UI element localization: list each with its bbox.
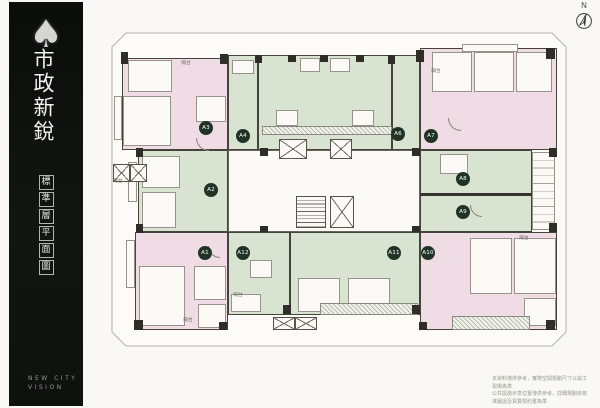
room-label: 陽台	[519, 235, 528, 241]
floor-plan: A1A2A3A4A6A7A8A9A10A11A12 陽台陽台陽台陽台陽台陽台	[0, 0, 600, 408]
unit-label-a4: A4	[236, 129, 250, 143]
wall-chunk	[260, 226, 268, 232]
wall-chunk	[546, 48, 555, 59]
room	[142, 156, 180, 188]
room-label: 陽台	[181, 60, 190, 66]
balcony	[114, 96, 122, 140]
service-balcony	[295, 317, 317, 330]
wall-chunk	[134, 320, 143, 330]
room	[196, 96, 226, 122]
unit-label-a11: A11	[387, 246, 401, 260]
unit-label-a9: A9	[456, 205, 470, 219]
room	[194, 266, 226, 300]
room	[139, 266, 185, 326]
wall-chunk	[549, 148, 557, 157]
wall-chunk	[546, 320, 555, 330]
bath-room	[352, 110, 374, 126]
wall-chunk	[412, 226, 420, 232]
closet-strip	[532, 152, 555, 230]
wall-chunk	[288, 55, 296, 62]
unit-a8-block	[420, 150, 532, 195]
room	[142, 192, 176, 228]
disclaimer-line2: 公共設施示意位置僅供參考，詳細規劃依核准圖說及買賣契約書為準	[492, 391, 588, 406]
wall-chunk	[549, 223, 557, 232]
wall-chunk	[388, 55, 395, 64]
room-label: 陽台	[113, 178, 122, 184]
room-label: 陽台	[183, 317, 192, 323]
unit-label-a10: A10	[421, 246, 435, 260]
wall-chunk	[219, 322, 227, 330]
room	[470, 238, 512, 294]
page: ♠ 市政新銳 標準層平面圖 NEW CITY VISION N	[0, 0, 600, 408]
balcony-hatch	[452, 316, 530, 330]
stairwell	[296, 196, 326, 228]
room	[128, 60, 172, 92]
unit-label-a12: A12	[236, 246, 250, 260]
service-balcony	[273, 317, 295, 330]
party-wall	[420, 193, 532, 196]
room	[330, 58, 350, 72]
disclaimer-line1: 本資料僅供參考，實際空間規劃尺寸以竣工現場為準	[492, 376, 588, 391]
balcony-hatch	[320, 303, 418, 315]
elevator-shaft	[279, 139, 307, 159]
wall-chunk	[136, 148, 143, 157]
unit-label-a6: A6	[391, 127, 405, 141]
wall-chunk	[412, 305, 420, 314]
service-balcony	[130, 164, 147, 182]
elevator-shaft	[330, 139, 352, 159]
unit-label-a1: A1	[198, 246, 212, 260]
wall-chunk	[260, 148, 268, 156]
corridor-hatch	[262, 126, 392, 135]
wall-chunk	[121, 52, 128, 64]
room	[123, 96, 171, 146]
room-label: 陽台	[431, 68, 440, 74]
wall-chunk	[320, 55, 328, 62]
bath-room	[276, 110, 298, 126]
unit-a5-a6-block	[258, 55, 392, 150]
balcony	[126, 240, 135, 288]
unit-label-a3: A3	[199, 121, 213, 135]
wall-chunk	[283, 305, 291, 314]
room	[232, 60, 254, 74]
wall-chunk	[136, 224, 143, 233]
wall-chunk	[255, 55, 262, 63]
room-label: 陽台	[233, 292, 242, 298]
wall-chunk	[356, 55, 364, 62]
wall-chunk	[419, 322, 427, 330]
room	[514, 238, 556, 294]
wall-chunk	[220, 54, 228, 64]
room	[250, 260, 272, 278]
wall-chunk	[416, 50, 424, 62]
elevator-shaft	[330, 196, 354, 228]
unit-label-a2: A2	[204, 183, 218, 197]
unit-label-a7: A7	[424, 129, 438, 143]
room	[300, 58, 320, 72]
room	[440, 154, 468, 174]
unit-label-a8: A8	[456, 172, 470, 186]
room	[474, 52, 514, 92]
wall-chunk	[412, 148, 420, 156]
disclaimer: 本資料僅供參考，實際空間規劃尺寸以竣工現場為準 公共設施示意位置僅供參考，詳細規…	[492, 376, 588, 406]
balcony	[462, 44, 518, 52]
